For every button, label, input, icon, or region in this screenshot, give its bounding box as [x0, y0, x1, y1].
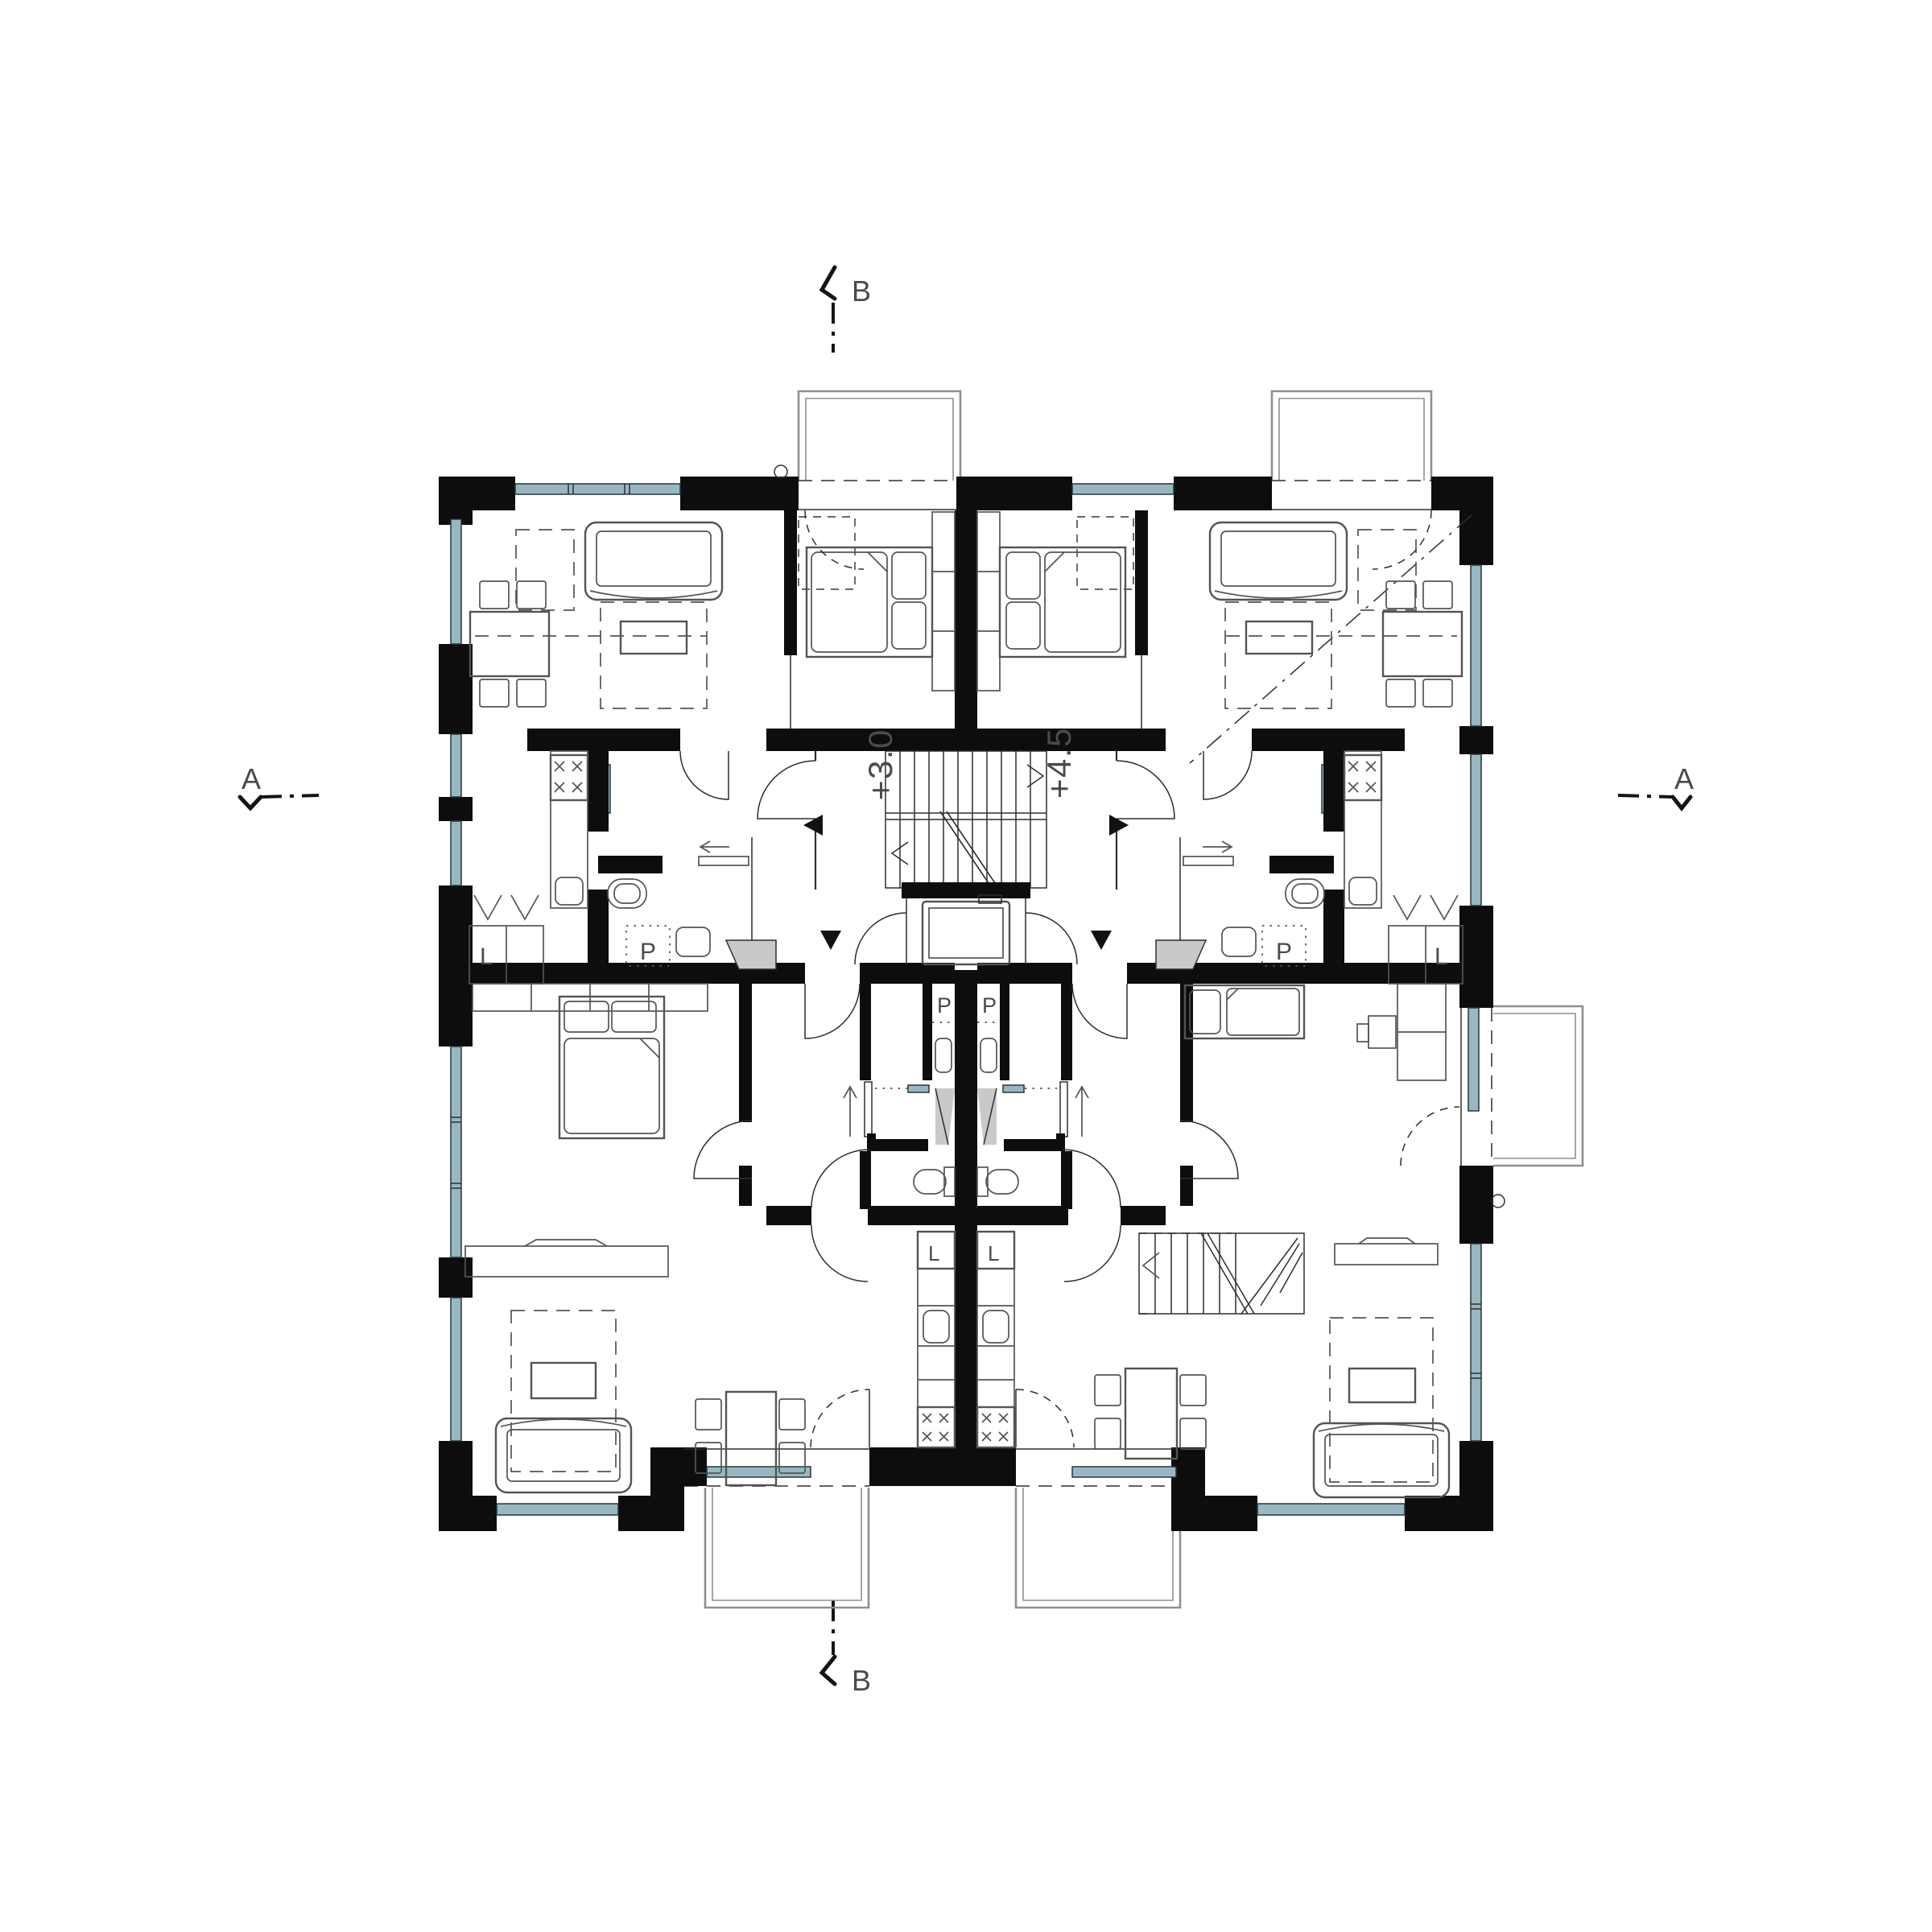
balconies	[684, 391, 1583, 1608]
kitchen-bottom-left: L	[918, 1232, 955, 1447]
entry-triangle-left	[803, 815, 823, 836]
sofa-top-left	[585, 522, 722, 600]
dining-set-bottom-right	[1095, 1368, 1206, 1459]
shelf-right	[1183, 857, 1233, 865]
stair-level-label-left: +3.0	[861, 729, 899, 800]
sideboard-bottom-right	[1335, 1238, 1438, 1265]
sideboard-bottom-left	[465, 1240, 668, 1277]
washer-label-shaft-left: P	[937, 993, 953, 1018]
up-arrow-left	[844, 1087, 857, 1137]
balcony-right	[1492, 1006, 1583, 1166]
balcony-door-top-right	[1373, 510, 1431, 569]
rug-bottom-right	[1330, 1318, 1433, 1482]
apartment-entry-door-right	[1117, 761, 1174, 819]
wc-left	[914, 1167, 955, 1196]
dining-set-top-left	[470, 581, 549, 707]
stair-level-label-right: +4.5	[1040, 727, 1078, 799]
rug-top-right	[1225, 602, 1331, 708]
coffee-table-top-left	[621, 621, 687, 654]
fridge-label-right-wardrobe: L	[1435, 943, 1449, 970]
rug-bottom-left	[511, 1311, 616, 1472]
coffee-table-bottom-left	[531, 1363, 596, 1398]
fridge-label-left: L	[928, 1241, 941, 1265]
kitchen-mid-right	[1344, 751, 1381, 908]
washer-label-left-bath: P	[640, 939, 658, 965]
cabinet-dashed-top-right	[1358, 530, 1416, 610]
balcony-door-bottom-left	[811, 1389, 869, 1447]
section-label-a-right: A	[1674, 762, 1695, 795]
section-marker-b-bottom: B	[822, 1600, 873, 1697]
section-marker-a-left: A	[240, 762, 319, 808]
kitchen-sink-bottom-right	[983, 1311, 1009, 1343]
apartment-bottom-right	[1016, 1195, 1505, 1497]
water-heater-left	[935, 1038, 952, 1072]
kitchen-sink-bottom-left	[923, 1311, 949, 1343]
corridor-arrow-left	[699, 841, 749, 865]
desk-right	[1357, 1016, 1396, 1048]
lower-hall-door-left	[805, 984, 860, 1038]
bedroom-mid-left	[473, 984, 752, 1179]
balcony-top-left	[799, 391, 960, 481]
downpipe-top	[774, 465, 787, 478]
roof-line	[1190, 515, 1472, 763]
sofa-bottom-right	[1314, 1423, 1449, 1497]
coffee-table-bottom-right	[1349, 1368, 1415, 1402]
balcony-top-right	[1272, 391, 1431, 481]
entry-triangle-right	[1109, 815, 1129, 836]
kitchen-sink-left	[555, 877, 583, 905]
kitchen-door-right	[1203, 751, 1252, 799]
bed-top-left	[807, 547, 932, 657]
floor-plan-canvas: B B A A	[0, 0, 1932, 1932]
section-label-b-bottom: B	[852, 1664, 873, 1697]
internal-stair	[1139, 1233, 1304, 1314]
up-arrow-right	[1075, 1087, 1088, 1137]
apartment-top-right	[977, 510, 1472, 763]
kitchen-door-left	[680, 751, 729, 799]
bedroom-mid-right	[1180, 984, 1459, 1179]
sink-right	[1222, 927, 1256, 956]
downpipe-right	[1492, 1195, 1505, 1207]
entry-triangle-down-right	[1091, 931, 1112, 950]
elevator	[855, 882, 1077, 964]
fridge-label-right: L	[988, 1241, 1001, 1265]
entry-triangle-down-left	[820, 931, 841, 950]
corridor-arrow-right	[1183, 841, 1233, 865]
stove-bottom-left	[918, 1407, 955, 1447]
section-label-b-top: B	[852, 275, 873, 308]
coffee-table-top-right	[1246, 621, 1312, 654]
balcony-bottom-left	[684, 1486, 869, 1608]
rug-top-left	[601, 602, 707, 708]
fridge-label-left-wardrobe: L	[480, 943, 494, 970]
lower-hall-door-right	[1072, 984, 1127, 1038]
stair-core: +3.0 +4.5	[855, 727, 1078, 964]
section-label-a-left: A	[242, 762, 262, 795]
bed-top-right	[1000, 547, 1125, 657]
balcony-door-bottom-right	[1016, 1389, 1074, 1447]
section-marker-a-right: A	[1618, 762, 1695, 808]
entry-step-left	[935, 1088, 955, 1145]
water-heater-right	[980, 1038, 997, 1072]
closet-strip-left	[932, 512, 955, 691]
washer-label-shaft-right: P	[982, 993, 998, 1018]
wc-right	[977, 1167, 1018, 1196]
dining-set-top-right	[1383, 581, 1462, 707]
kitchen-bottom-right: L	[977, 1232, 1014, 1447]
closet-strip-right	[977, 512, 1000, 691]
sofa-bottom-left	[496, 1418, 631, 1492]
kitchen-sink-right	[1349, 877, 1377, 905]
kitchen-mid-left	[551, 751, 588, 908]
balcony-bottom-right	[1016, 1486, 1180, 1608]
apartment-entry-door-left	[758, 761, 815, 819]
shelf-left	[699, 857, 749, 865]
sofa-top-right	[1210, 522, 1347, 600]
double-bed-mid-left	[559, 997, 664, 1138]
entry-step-right	[977, 1088, 997, 1145]
cabinet-dashed-top-left	[516, 530, 574, 610]
stove-bottom-right	[977, 1407, 1014, 1447]
sink-left	[676, 927, 710, 956]
single-bed-mid-right	[1185, 985, 1304, 1038]
section-marker-b-top: B	[822, 267, 873, 353]
floor-plan-svg: B B A A	[0, 0, 1932, 1932]
washer-label-right-bath: P	[1276, 939, 1294, 965]
